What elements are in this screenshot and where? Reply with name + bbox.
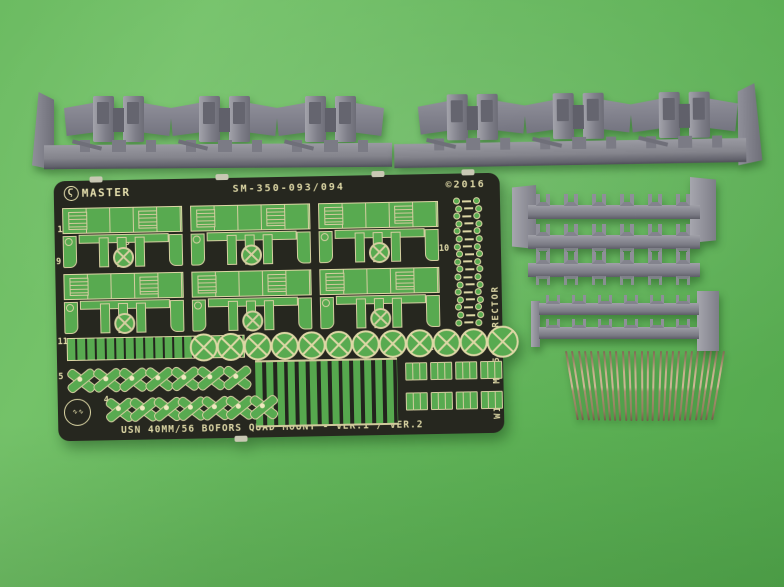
resin-sprue-right: [392, 81, 763, 175]
rack-row-bar: [528, 205, 700, 219]
pe-clip-part: [470, 391, 478, 409]
rack-stud: [536, 194, 550, 206]
brand-text: MASTER: [82, 186, 131, 200]
rack-stud: [620, 252, 634, 264]
rack-stud: [650, 319, 664, 328]
gun-breech-assembly: [420, 94, 525, 153]
shield-handwheel: [241, 244, 262, 265]
fret-hanging-tab: [461, 169, 474, 175]
pe-eyelet: [454, 258, 481, 266]
metal-barrel: [615, 351, 622, 421]
rack-stud: [624, 319, 638, 328]
metal-barrel: [641, 351, 644, 421]
pe-handwheel: [351, 330, 380, 359]
rack-stud: [676, 295, 690, 304]
shield-handwheel: [370, 308, 391, 329]
pe-clip-part: [419, 362, 427, 380]
gun-breech-assembly: [632, 91, 737, 150]
master-logo-icon: Ϛ: [64, 186, 79, 201]
rack-stud: [592, 252, 606, 264]
rack-stud: [648, 252, 662, 264]
pe-shield-panel: [318, 201, 441, 265]
metal-barrel: [634, 351, 638, 421]
rack-stud: [546, 319, 560, 328]
rack-stud: [564, 252, 578, 264]
pe-handwheel: [378, 330, 407, 359]
rack-stud: [546, 295, 560, 304]
copyright-text: ©2016: [445, 179, 485, 191]
rack-stud: [564, 194, 578, 206]
fret-hanging-tab: [89, 176, 102, 182]
rack-stud: [620, 276, 634, 285]
pe-clip-part: [494, 361, 502, 379]
rack-stud: [598, 319, 612, 328]
pe-clip-part: [420, 392, 428, 410]
pe-shield-panel: [190, 203, 313, 267]
rack-stud: [648, 224, 662, 236]
resin-rack-small: [531, 291, 719, 355]
pe-clip-part: [469, 361, 477, 379]
rack-row-bar: [539, 303, 699, 315]
gun-breech-assembly: [278, 96, 382, 154]
part-label: 9: [56, 257, 61, 267]
gun-breech-assembly: [66, 96, 170, 154]
pe-eyelet: [454, 243, 481, 251]
pe-shield-panel: [62, 206, 185, 270]
pe-eyelet: [457, 311, 484, 319]
pe-eyelet: [457, 296, 484, 304]
rack-stud: [592, 224, 606, 236]
shield-top-bar: [318, 201, 438, 229]
metal-barrel: [711, 351, 725, 420]
fret-hanging-tab: [234, 436, 247, 442]
rack-stud: [648, 194, 662, 206]
rack-stud: [598, 295, 612, 304]
pe-eyelet: [456, 250, 483, 258]
shield-handwheel: [242, 310, 263, 331]
brand-mark: Ϛ MASTER: [64, 185, 131, 201]
rack-stud: [650, 295, 664, 304]
resin-sprue-left: [30, 88, 392, 174]
pe-eyelet: [454, 273, 481, 281]
rack-stud: [564, 224, 578, 236]
pe-eyelet: [453, 197, 480, 205]
metal-barrel: [622, 351, 628, 421]
pe-eyelet: [457, 281, 484, 289]
pe-eyelet: [454, 228, 481, 236]
pe-eyelet: [453, 212, 480, 220]
pe-handwheel: [486, 325, 519, 358]
pe-handwheel: [243, 332, 272, 361]
rack-stud: [676, 224, 690, 236]
metal-barrel: [628, 351, 633, 421]
fret-hanging-tab: [371, 171, 384, 177]
metal-barrel: [657, 351, 662, 421]
rack-stud: [572, 295, 586, 304]
rack-stud: [572, 319, 586, 328]
rack-stud: [676, 252, 690, 264]
rack-stud: [676, 276, 690, 285]
rack-stud: [592, 194, 606, 206]
rack-stud: [620, 224, 634, 236]
metal-barrel: [646, 351, 649, 421]
rack-row-bar: [539, 327, 699, 339]
rack-stud: [620, 194, 634, 206]
pe-eyelet: [456, 265, 483, 273]
rack-stud: [564, 276, 578, 285]
shield-top-bar: [319, 267, 439, 295]
pe-shield-panel: [191, 269, 314, 333]
fret-hanging-tab: [215, 174, 228, 180]
shield-top-bar: [63, 272, 183, 300]
pe-clip-part: [495, 391, 503, 409]
rack-row-bar: [528, 263, 700, 277]
pe-cross-part: [248, 391, 279, 422]
pe-shield-panel: [63, 272, 186, 336]
rack-stud: [676, 194, 690, 206]
set-number: SM-350-093/094: [204, 181, 374, 195]
pe-clip-part: [444, 362, 452, 380]
rack-stud: [624, 295, 638, 304]
pe-shield-panel: [319, 267, 442, 331]
pe-handwheel: [432, 329, 461, 358]
rack-end-wall: [697, 291, 719, 351]
rack-row-bar: [528, 235, 700, 249]
part-label: 5: [58, 372, 63, 382]
shield-handwheel: [369, 242, 390, 263]
pe-handwheel: [324, 331, 353, 360]
pe-cross-part: [221, 362, 252, 393]
rack-stud: [536, 252, 550, 264]
master-model-round-logo: ∿∿: [64, 399, 92, 427]
gun-breech-assembly: [172, 96, 276, 154]
gun-breech-assembly: [526, 92, 631, 151]
pe-eyelet: [455, 220, 482, 228]
pe-handwheel: [405, 329, 434, 358]
rack-stud: [592, 276, 606, 285]
shield-top-bar: [62, 206, 182, 234]
shield-top-bar: [191, 269, 311, 297]
metal-barrel-fan: [556, 351, 740, 427]
pe-eyelet: [455, 319, 482, 327]
pe-handwheel: [459, 328, 488, 357]
pe-eyelet: [455, 205, 482, 213]
metal-barrel: [652, 351, 656, 421]
rack-stud: [676, 319, 690, 328]
kit-contents-photo: Ϛ MASTER SM-350-093/094 ©2016 WITH MK-51…: [0, 0, 784, 587]
pe-fret: Ϛ MASTER SM-350-093/094 ©2016 WITH MK-51…: [54, 173, 505, 442]
shield-handwheel: [114, 313, 135, 334]
rack-stud: [536, 224, 550, 236]
pe-eyelet: [455, 288, 482, 296]
pe-eyelet: [456, 235, 483, 243]
pe-clip-part: [445, 392, 453, 410]
rack-stud: [536, 276, 550, 285]
rack-stud: [648, 276, 662, 285]
vertical-note: WITH MK-51 DIRECTOR: [489, 201, 503, 419]
pe-eyelet: [455, 303, 482, 311]
shield-handwheel: [113, 247, 134, 268]
shield-top-bar: [190, 203, 310, 231]
resin-rack-large: [512, 177, 716, 289]
part-label: 11: [58, 337, 68, 347]
pe-handwheel: [270, 332, 299, 361]
pe-handwheel: [297, 331, 326, 360]
